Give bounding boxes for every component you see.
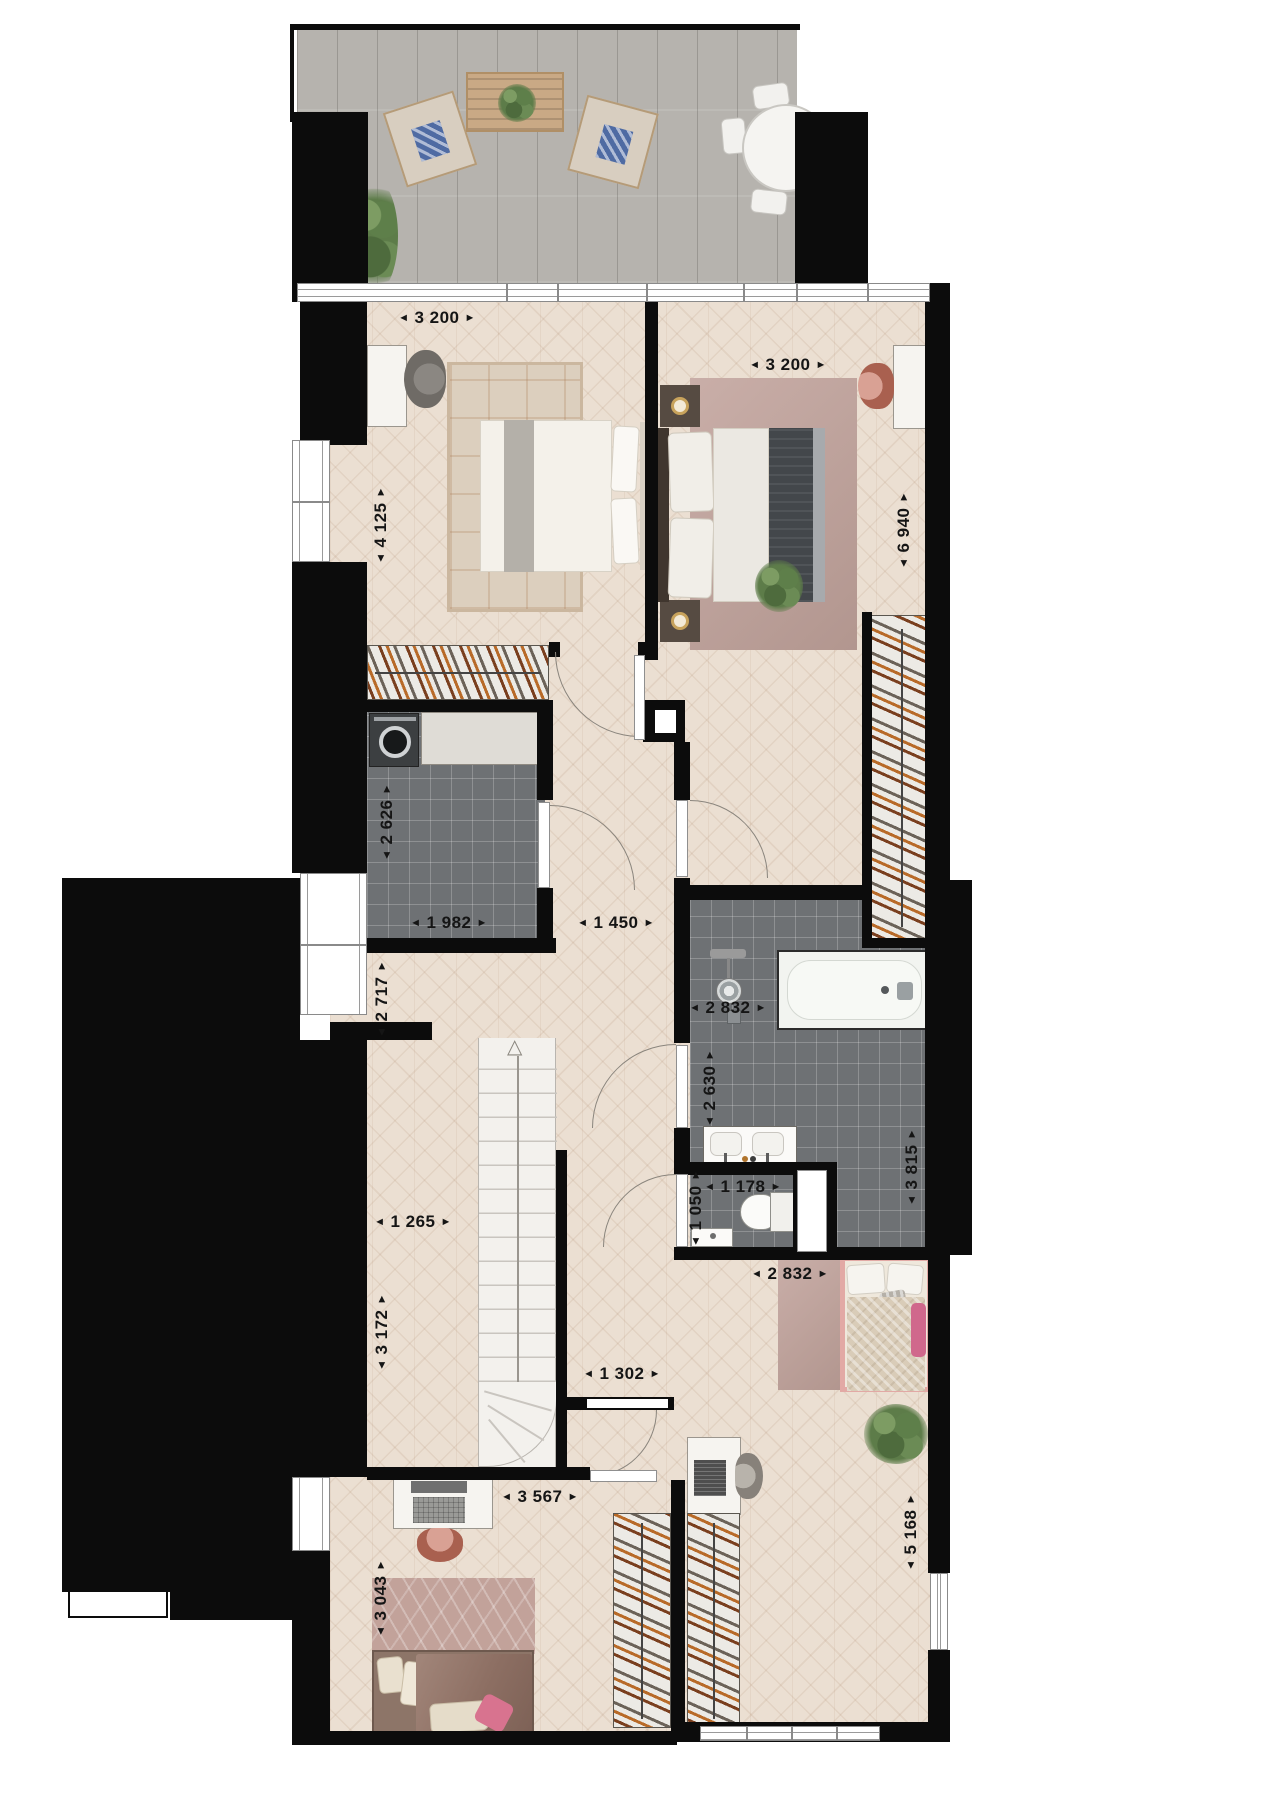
dim-bedroom-bottom-right-width: ◄2 832► (730, 1263, 850, 1285)
arrow-right-icon: ► (818, 1269, 829, 1280)
dim-value: 3 172 (372, 1309, 392, 1354)
arrow-right-icon: ► (705, 1049, 716, 1060)
laptop-icon (411, 1481, 467, 1493)
rug-bottom-left (372, 1578, 535, 1654)
dim-wc-depth: ◄1 050► (685, 1166, 707, 1250)
arrow-right-icon: ► (477, 918, 488, 929)
window-mullion (557, 284, 559, 301)
dim-value: 2 832 (767, 1264, 812, 1284)
dim-bedroom-bottom-left-depth: ◄3 043► (370, 1538, 392, 1658)
arrow-right-icon: ► (816, 360, 827, 371)
window-mullion (836, 1727, 838, 1740)
desk-bottom-right (687, 1437, 741, 1515)
dresser (367, 345, 407, 427)
arrow-left-icon: ◄ (689, 1003, 700, 1014)
table-plant (498, 84, 536, 122)
window-mullion (746, 1727, 748, 1740)
arrow-right-icon: ► (771, 1182, 782, 1193)
wardrobe-hall-top (367, 645, 549, 700)
arrow-right-icon: ► (906, 1493, 917, 1504)
dim-value: 6 940 (894, 507, 914, 552)
cushion (411, 120, 450, 162)
arrow-right-icon: ► (907, 1128, 918, 1139)
laptop-keyboard-icon (413, 1497, 465, 1523)
window-mullion (301, 944, 366, 946)
arrow-left-icon: ◄ (577, 918, 588, 929)
dim-value: 1 265 (390, 1212, 435, 1232)
washer-door (379, 726, 411, 758)
dim-bedroom-top-right-width: ◄3 200► (728, 354, 848, 376)
wall (367, 1467, 590, 1480)
arrow-right-icon: ► (568, 1492, 579, 1503)
wardrobe-bottom-right (687, 1513, 740, 1728)
desk-bottom-left (393, 1475, 493, 1529)
duvet (480, 420, 612, 572)
arrow-right-icon: ► (376, 1559, 387, 1570)
arrow-right-icon: ► (899, 491, 910, 502)
wall (300, 302, 330, 440)
dim-value: 3 043 (371, 1575, 391, 1620)
window-band-top (297, 283, 930, 302)
dim-value: 1 982 (426, 913, 471, 933)
blanket-runner (504, 420, 534, 572)
dim-value: 1 450 (593, 913, 638, 933)
arrow-left-icon: ◄ (749, 360, 760, 371)
dim-bedroom-top-right-depth: ◄6 940► (893, 470, 915, 590)
window-mullion (867, 284, 869, 301)
wall-block (170, 1592, 300, 1620)
cushion (596, 124, 634, 165)
stair-direction-arrow: △ (507, 1034, 522, 1059)
dim-value: 3 815 (902, 1144, 922, 1189)
computer-icon (694, 1460, 726, 1496)
dim-value: 2 626 (377, 799, 397, 844)
window-band-bottom (700, 1726, 880, 1741)
arrow-left-icon: ◄ (410, 918, 421, 929)
terrace-dining-chair-bottom (750, 188, 788, 216)
dim-value: 3 200 (765, 355, 810, 375)
wall (862, 612, 872, 943)
tub-drain-icon (881, 986, 889, 994)
wall (292, 112, 368, 302)
wall (827, 1162, 837, 1260)
dim-value: 2 832 (705, 998, 750, 1018)
arrow-left-icon: ◄ (705, 1116, 716, 1127)
mattress-edge (813, 428, 825, 602)
dim-stair-landing-depth: ◄3 172► (371, 1272, 393, 1392)
arrow-right-icon: ► (377, 1293, 388, 1304)
door-leaf-laundry (538, 802, 550, 888)
wall (292, 562, 367, 873)
wall-block (62, 878, 300, 1592)
stair-guide-line (517, 1056, 519, 1382)
dim-laundry-depth: ◄2 626► (376, 762, 398, 882)
arrow-right-icon: ► (691, 1169, 702, 1180)
dim-stair-landing-width: ◄1 265► (353, 1211, 473, 1233)
floor-plan: △ (0, 0, 1280, 1810)
door-leaf-bedroom-top-right (676, 800, 688, 877)
washer-panel (374, 717, 416, 721)
arrow-left-icon: ◄ (377, 1360, 388, 1371)
wall (925, 283, 950, 880)
dim-lower-hall-width: ◄1 302► (562, 1363, 682, 1385)
dim-bathroom-depth: ◄2 630► (699, 1028, 721, 1148)
dim-value: 1 302 (599, 1364, 644, 1384)
arrow-left-icon: ◄ (501, 1492, 512, 1503)
window-left-bottom (292, 1477, 330, 1551)
door-leaf-bedroom-bottom-right (590, 1470, 657, 1482)
dim-value: 1 050 (686, 1185, 706, 1230)
wall (290, 30, 294, 122)
dim-bedroom-bottom-right-depth: ◄5 168► (900, 1472, 922, 1592)
dim-bathroom-width: ◄2 832► (668, 997, 788, 1019)
dim-bedroom-bottom-left-width: ◄3 567► (480, 1486, 600, 1508)
pillow (610, 497, 639, 564)
terrace-coffee-table (466, 72, 564, 132)
arrow-right-icon: ► (377, 960, 388, 971)
wardrobe-bedroom-top-right (870, 615, 933, 941)
plant-bedroom-top-right (755, 560, 803, 612)
toilet-tank (770, 1192, 794, 1232)
window-mullion (796, 284, 798, 301)
window-mullion (791, 1727, 793, 1740)
shower-arm-icon (727, 958, 730, 980)
wall (300, 1040, 367, 1477)
wardrobe-bottom-left (613, 1513, 671, 1728)
bathtub (777, 950, 932, 1030)
dim-hall-corridor-width: ◄1 450► (556, 912, 676, 934)
arrow-right-icon: ► (644, 918, 655, 929)
arrow-left-icon: ◄ (906, 1560, 917, 1571)
wall (862, 938, 935, 948)
dim-hall-depth: ◄2 717► (371, 939, 393, 1059)
dim-laundry-width: ◄1 982► (389, 912, 509, 934)
wall (330, 302, 367, 445)
wall (671, 1480, 685, 1740)
desk-chair-terracotta (417, 1528, 463, 1562)
bedside-lamp (671, 397, 689, 415)
faucet-icon (766, 1153, 769, 1162)
dim-value: 5 168 (901, 1509, 921, 1554)
plant-bottom-right (864, 1404, 928, 1464)
pillow (846, 1263, 886, 1296)
dim-value: 4 125 (371, 502, 391, 547)
wall (928, 1255, 950, 1573)
wall (537, 700, 553, 800)
arrow-right-icon: ► (650, 1369, 661, 1380)
dim-bedroom-top-left-width: ◄3 200► (377, 307, 497, 329)
arrow-left-icon: ◄ (374, 1217, 385, 1228)
daybed-pink (840, 1256, 932, 1392)
arrow-left-icon: ◄ (398, 313, 409, 324)
wall (795, 112, 868, 283)
armchair (404, 350, 446, 408)
desk-chair-terracotta (858, 363, 894, 409)
laundry-counter (421, 712, 541, 765)
bed-single-bottom-left (372, 1650, 534, 1738)
window-left-hall (300, 873, 367, 1015)
door-leaf-bedroom-top-left (634, 655, 645, 740)
arrow-left-icon: ◄ (583, 1369, 594, 1380)
window-mullion (646, 284, 648, 301)
window-left-bedroom (292, 440, 330, 562)
arrow-right-icon: ► (441, 1217, 452, 1228)
dim-value: 3 567 (517, 1487, 562, 1507)
arrow-right-icon: ► (376, 486, 387, 497)
wall (292, 1731, 677, 1745)
arrow-right-icon: ► (465, 313, 476, 324)
arrow-left-icon: ◄ (376, 553, 387, 564)
dim-bedroom-top-left-depth: ◄4 125► (370, 465, 392, 585)
arrow-left-icon: ◄ (377, 1027, 388, 1038)
bed-double-left (480, 420, 648, 572)
dim-bathroom-right-depth: ◄3 815► (901, 1107, 923, 1227)
arrow-left-icon: ◄ (376, 1626, 387, 1637)
dim-value: 1 178 (720, 1177, 765, 1197)
washing-machine (369, 713, 419, 767)
arrow-left-icon: ◄ (691, 1236, 702, 1247)
arrow-right-icon: ► (756, 1003, 767, 1014)
arrow-left-icon: ◄ (907, 1195, 918, 1206)
pillow (668, 431, 715, 512)
pink-cushion (911, 1303, 926, 1357)
window-right-bottom (930, 1573, 948, 1650)
window-mullion (743, 284, 745, 301)
arrow-left-icon: ◄ (382, 850, 393, 861)
window-mullion (293, 501, 329, 503)
wall (290, 24, 800, 30)
wall (925, 880, 972, 1255)
pillow (610, 425, 639, 492)
door-leaf-bathroom (676, 1045, 688, 1128)
meter-box (68, 1590, 168, 1618)
dim-value: 2 630 (700, 1065, 720, 1110)
wall (674, 742, 690, 800)
arrow-left-icon: ◄ (751, 1269, 762, 1280)
window-mullion (506, 284, 508, 301)
dim-value: 3 200 (414, 308, 459, 328)
arrow-left-icon: ◄ (899, 558, 910, 569)
wall (367, 700, 549, 712)
arrow-right-icon: ► (382, 783, 393, 794)
desk-chair-gray (735, 1453, 763, 1499)
dim-value: 2 717 (372, 976, 392, 1021)
tub-faucet-icon (897, 982, 913, 1000)
toilet (740, 1192, 794, 1232)
